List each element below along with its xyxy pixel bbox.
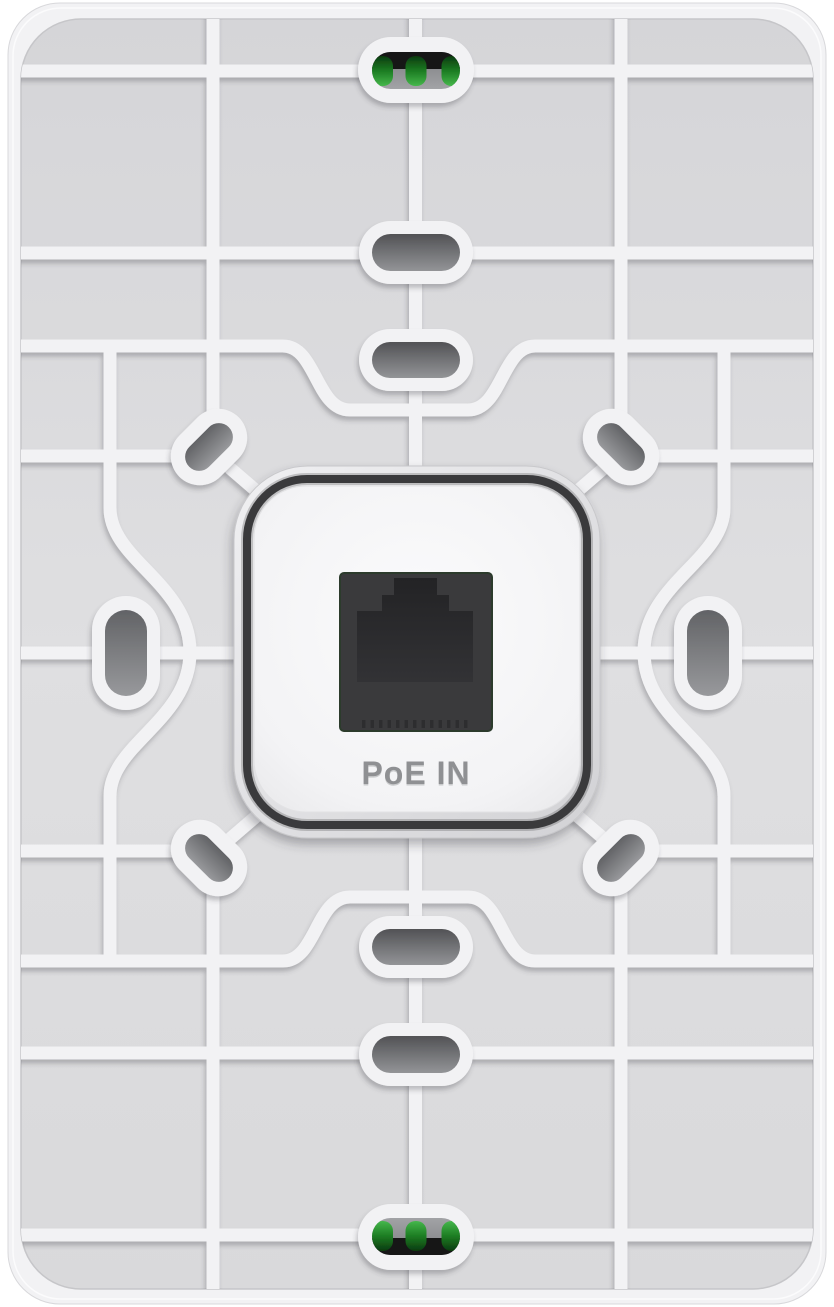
bottom-connector-window	[358, 1204, 474, 1270]
top-connector-window	[358, 37, 474, 103]
pcb-green-posts	[372, 56, 463, 86]
oval-cutout-row2	[359, 221, 473, 284]
center-module: PoE IN PoE IN	[234, 466, 600, 838]
pcb-green-posts	[372, 1221, 463, 1251]
product-photo-stage: PoE IN PoE IN	[0, 0, 834, 1307]
poe-port	[340, 573, 492, 731]
pcb-connector-top	[372, 52, 463, 86]
device-rear-plate: PoE IN PoE IN	[0, 0, 834, 1307]
oval-cutout-row8	[359, 1023, 473, 1086]
oval-cutout-left	[92, 596, 160, 710]
oval-cutout-row7	[359, 916, 473, 978]
oval-cutout-right	[674, 596, 742, 710]
port-label-text: PoE IN	[361, 755, 470, 791]
poe-port-label: PoE IN PoE IN	[361, 755, 470, 793]
oval-cutout-row3	[359, 329, 473, 391]
pcb-connector-bottom	[372, 1221, 463, 1255]
